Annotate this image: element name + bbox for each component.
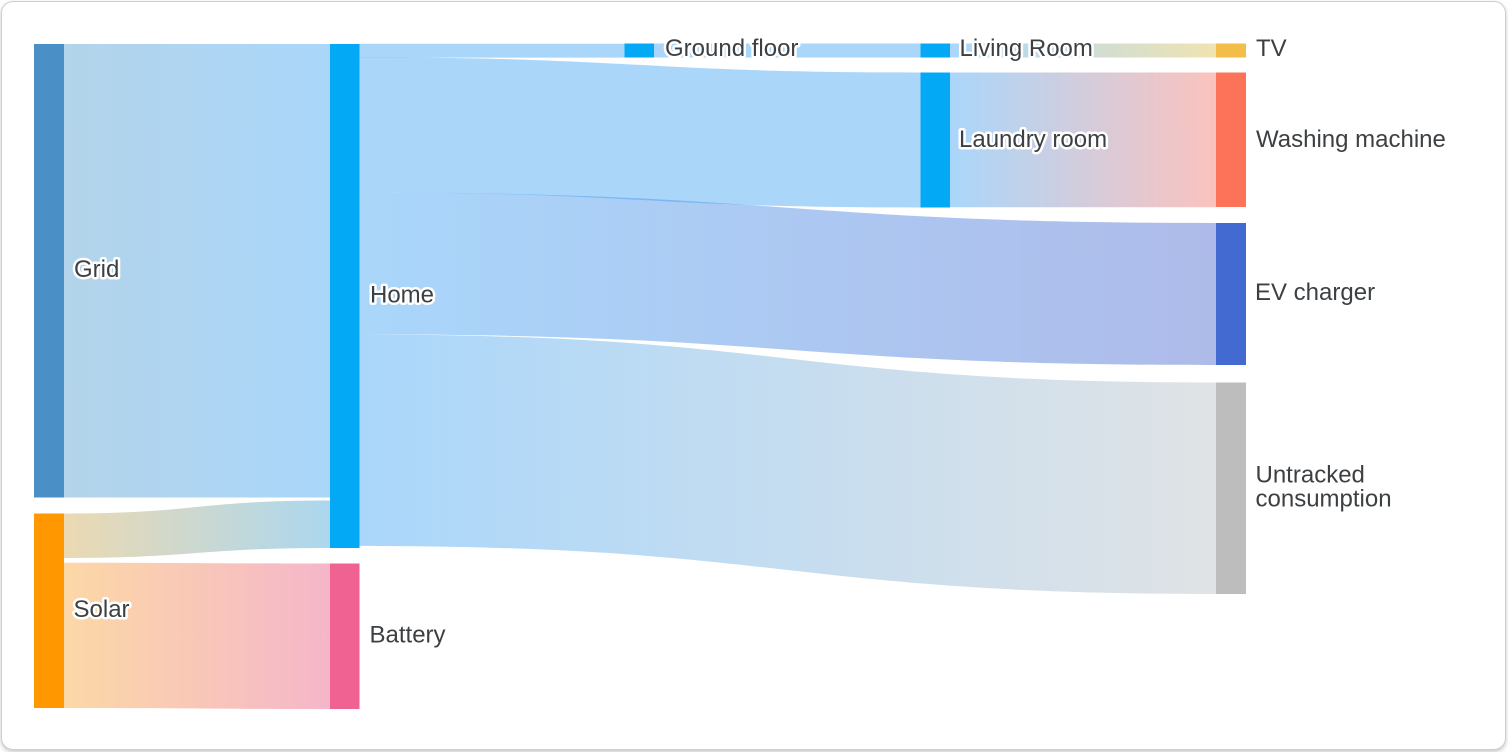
svg-text:Living Room: Living Room [960, 35, 1093, 62]
svg-text:Ground floor: Ground floor [665, 35, 798, 62]
svg-text:Home: Home [370, 282, 434, 309]
svg-text:Solar: Solar [74, 596, 130, 623]
svg-text:Laundry room: Laundry room [959, 126, 1107, 153]
svg-text:Battery: Battery [370, 622, 446, 649]
svg-text:EV charger: EV charger [1255, 279, 1375, 306]
svg-text:TV: TV [1256, 35, 1287, 62]
svg-text:consumption: consumption [1256, 485, 1392, 512]
svg-text:Washing machine: Washing machine [1256, 126, 1446, 153]
svg-text:Grid: Grid [74, 256, 119, 283]
